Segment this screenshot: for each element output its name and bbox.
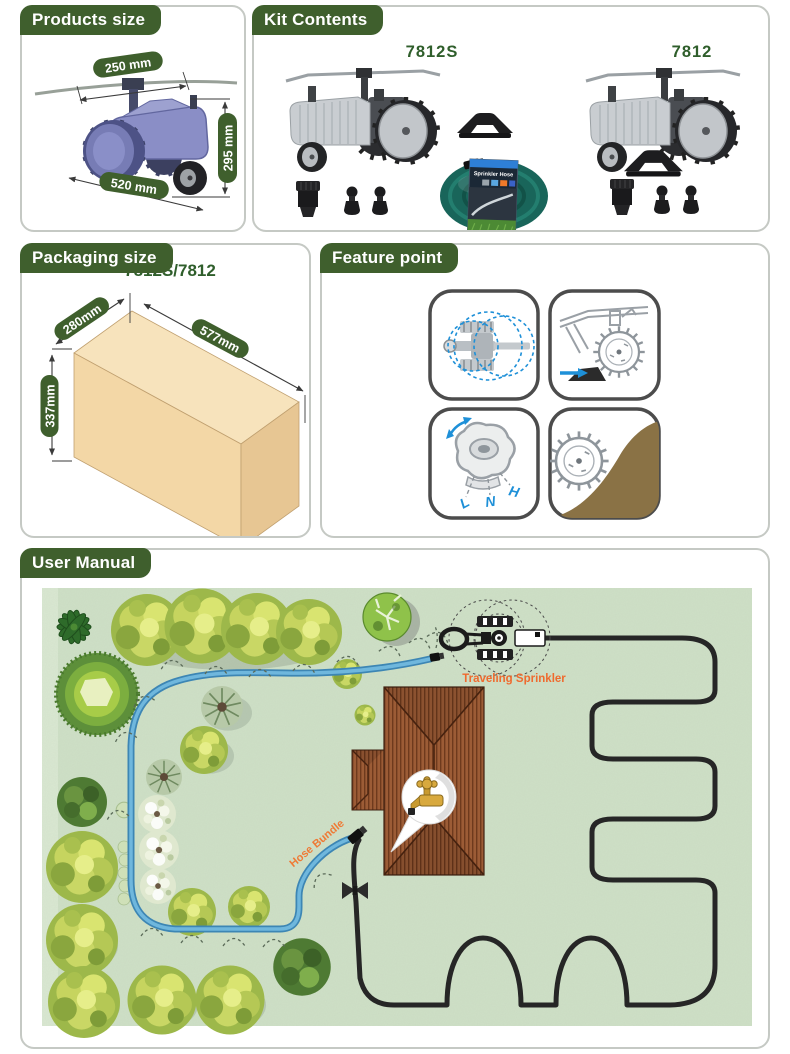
dim-pill-height: 295 mm: [218, 113, 237, 183]
kit-contents-illustration: 7812S 7812 Sprinkler Hose: [254, 7, 768, 230]
products-size-panel: Products size: [20, 5, 246, 232]
sprinkler-hose-coil: Sprinkler Hose: [440, 157, 548, 230]
products-size-title: Products size: [20, 5, 161, 35]
tree: [57, 777, 107, 827]
packaging-illustration: 7812S/7812 280mm 577mm 337mm: [22, 245, 309, 536]
flower-tree: [140, 868, 176, 904]
tree: [46, 831, 118, 903]
tree: [180, 726, 228, 774]
kit-7812S-coupler: [296, 181, 320, 217]
tree: [48, 966, 120, 1038]
packaging-size-panel: Packaging size 7812S/7812 280mm: [20, 243, 311, 538]
traveling-sprinkler-label: Traveling Sprinkler: [462, 673, 566, 685]
hose-card: Sprinkler Hose: [467, 159, 518, 230]
svg-text:295 mm: 295 mm: [222, 125, 236, 172]
tree: [128, 966, 197, 1035]
feature-point-title: Feature point: [320, 243, 458, 273]
tree: [355, 705, 376, 726]
kit-7812S-ramp: [457, 113, 513, 138]
tree: [228, 886, 270, 928]
tree: [196, 966, 265, 1035]
hedge-row: [111, 589, 342, 671]
dim-pill-height: 337mm: [41, 375, 59, 437]
model-label-7812S: 7812S: [406, 43, 459, 61]
tree: [46, 904, 118, 976]
tree: [146, 759, 182, 795]
user-manual-title: User Manual: [20, 548, 151, 578]
kit-7812-nozzles: [654, 186, 699, 215]
model-label-7812: 7812: [672, 43, 713, 61]
packaging-size-title: Packaging size: [20, 243, 173, 273]
carton-box: [74, 311, 299, 536]
user-manual-panel: User Manual: [20, 548, 770, 1049]
feature-icons: L N H: [322, 245, 768, 536]
tree: [201, 686, 243, 728]
garden-map: Traveling Sprinkler Hose Bundle: [22, 550, 768, 1047]
big-bush: [56, 653, 138, 735]
feature-point-panel: Feature point: [320, 243, 770, 538]
kit-contents-title: Kit Contents: [252, 5, 383, 35]
porch-roof: [352, 750, 384, 810]
kit-7812-coupler: [610, 179, 634, 215]
dim-pill-width: 250 mm: [92, 50, 164, 79]
kit-7812S-nozzles: [344, 187, 388, 216]
kit-7812S-tractor: [286, 68, 440, 172]
front-wheel: [173, 161, 207, 195]
tree: [273, 938, 331, 996]
flower-tree: [138, 795, 176, 833]
flower-tree: [139, 830, 179, 870]
products-size-illustration: 250 mm 295 mm 520 mm: [22, 7, 244, 230]
kit-contents-panel: Kit Contents: [252, 5, 770, 232]
svg-text:337mm: 337mm: [44, 384, 58, 427]
